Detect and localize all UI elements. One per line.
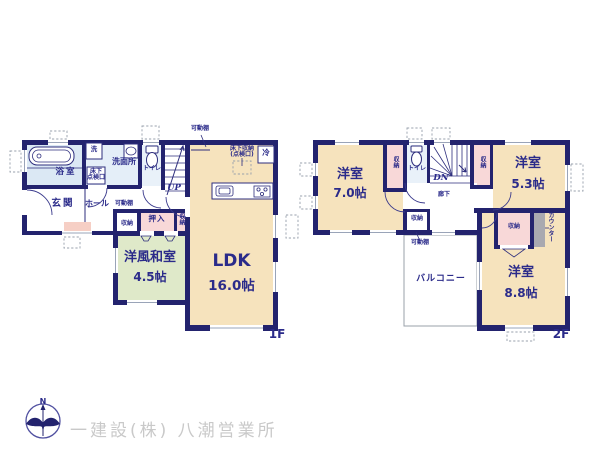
room53-size-label: 5.3帖 [494, 178, 562, 192]
corridor-label: 廊下 [430, 192, 458, 199]
movable-shelf-2f-label: 可動棚 [402, 240, 438, 247]
toilet-2f-label: トイレ [405, 166, 429, 173]
ldk-name-label: LDK [190, 252, 273, 272]
toilet-icon-2f [411, 146, 422, 166]
closet-88jo-label: 収納 [499, 224, 529, 231]
room88-size-label: 8.8帖 [487, 287, 555, 301]
room-ldk [190, 145, 273, 325]
oshiire-label: 押入 [140, 215, 174, 224]
stairs-down-label: DN [429, 174, 453, 184]
room7-name-label: 洋室 [316, 168, 384, 183]
floorplan-image: 可動棚 床下収納 (点検口) 冷 浴室 洗 洗面所 床下 点検口 トイレ UP … [0, 0, 600, 450]
compass-north-label: N [36, 397, 50, 406]
counter-strip [534, 213, 545, 247]
movable-shelf-hall-label: 可動棚 [106, 201, 142, 208]
compass-icon [26, 404, 60, 438]
balcony-label: バルコニー [403, 274, 479, 284]
washitsu-size-label: 4.5帖 [110, 271, 190, 285]
closet-corridor-label: 収納 [403, 216, 431, 223]
kitchen-counter-icon [212, 183, 273, 199]
closet-53jo-label: 収納 [479, 156, 485, 168]
washroom-label: 洗面所 [99, 157, 149, 166]
room-washitsu [118, 236, 185, 300]
ldk-size-label: 16.0帖 [190, 279, 273, 295]
closet-1f-label: 収納 [178, 213, 184, 225]
fridge-label: 冷 [256, 149, 276, 158]
toilet-1f-label: トイレ [140, 166, 164, 173]
room7-size-label: 7.0帖 [316, 187, 384, 201]
stairs-up-label: UP [162, 184, 186, 194]
washer-label: 洗 [86, 146, 102, 153]
room88-name-label: 洋室 [487, 266, 555, 281]
genkan-step [64, 222, 91, 231]
bath-label: 浴室 [44, 168, 88, 178]
washitsu-name-label: 洋風和室 [110, 251, 190, 266]
room53-name-label: 洋室 [494, 157, 562, 172]
movable-shelf-ldk-label: 可動棚 [180, 126, 220, 133]
floor2-label: 2F [546, 328, 576, 342]
closet-small-1f-label: 収納 [113, 221, 141, 228]
sink-icon [124, 144, 138, 158]
underfloor-hatch-label: 床下 点検口 [85, 169, 107, 182]
counter-label: カウンター [547, 212, 553, 242]
closet-7jo-label: 収納 [392, 156, 398, 168]
company-name: 一建設(株) 八潮営業所 [70, 416, 278, 441]
floor1-label: 1F [262, 328, 292, 342]
